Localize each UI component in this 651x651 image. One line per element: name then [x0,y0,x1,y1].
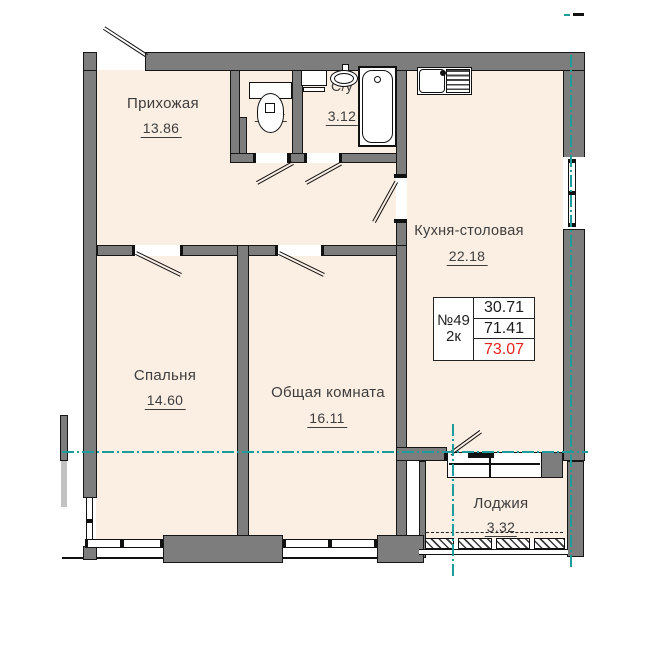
wall-bedroom-living-divider [237,245,249,536]
wall-right-lower [563,229,585,461]
door-jamb [394,174,407,178]
wall-right-upper [563,70,585,158]
axis-line-vertical-right [570,55,572,569]
room-label-living: Общая комната [271,384,385,401]
apartment-number: №49 [437,313,470,330]
wall-hall-bedroom-3 [323,245,397,256]
wall-hall-bedroom-1 [97,245,135,256]
window-tick [86,519,93,523]
axis-line-vertical-loggia [452,424,454,576]
washbasin-inner-icon [334,73,354,84]
room-label-bedroom: Спальня [134,367,196,384]
kitchen-sink-drainer-icon [446,69,470,93]
room-label-hallway: Прихожая [127,95,199,112]
door-jamb [321,245,324,256]
wall-bath-bottom-3 [341,153,397,163]
room-area-bedroom: 14.60 [145,392,186,410]
loggia-parapet-hatch [496,538,530,549]
door-jamb [394,219,407,223]
washing-machine-front-icon [303,87,325,92]
window-tick [283,539,286,548]
room-area-loggia: 3.32 [485,519,517,537]
wall-top-left-post [83,52,97,71]
reference-mark [573,13,584,16]
living-area-cell: 30.71 [474,298,534,319]
loggia-bottom-edge [419,549,568,555]
room-label-kitchen: Кухня-столовая [414,223,523,239]
window-tick [160,539,163,548]
opening-bath-door [307,153,341,163]
loggia-parapet-hatch [458,538,492,549]
door-jamb [180,245,183,256]
wall-kitchen-bottom [396,447,447,461]
wall-left-bottom-post [83,546,97,560]
loggia-parapet-hatch [534,538,565,549]
toilet-flush-icon [265,103,275,113]
bathtub-drain-icon [374,76,381,83]
floor-plan: Прихожая 13.86 С/у 1.54 С/у 3.12 Кухня-с… [0,0,651,651]
room-area-kitchen: 22.18 [447,248,488,266]
room-area-living: 16.11 [307,410,347,428]
washing-machine-icon [301,70,327,86]
total-area-cell: 73.07 [474,339,534,360]
room-area-hallway: 13.86 [141,120,182,138]
window-bedroom-bottom [85,539,163,548]
wall-kitchen-living [396,245,407,448]
opening-entrance [97,53,145,70]
window-tick [85,539,88,548]
axis-line-horizontal [62,451,588,453]
door-jamb [253,153,256,163]
balcony-unit-midline [449,463,540,465]
wall-exterior-stub [60,415,68,461]
window-tick [328,539,332,548]
wall-exterior-stub-light [61,461,67,507]
apartment-number-cell: №49 2к [434,298,474,360]
toilet-bowl-icon [257,93,284,133]
wall-hall-bedroom-2 [182,245,278,256]
area-without-loggia-cell: 71.41 [474,319,534,339]
wall-left [83,70,97,498]
reference-mark-teal [564,14,570,16]
opening-wc-door [256,153,290,163]
wall-balcony-pier [541,452,563,478]
balcony-door-window-unit [447,452,542,478]
door-jamb [304,153,307,163]
opening-kitchen-door [396,178,407,221]
wall-bottom-right-block [377,535,424,563]
room-label-loggia: Лоджия [474,495,529,512]
wall-kitchen-west-upper [396,70,407,178]
room-area-bathroom: 3.12 [326,108,358,126]
balcony-unit-threshold [468,453,494,458]
window-tick [120,539,124,548]
wall-bottom-pier [163,535,283,563]
apartment-type: 2к [446,329,461,346]
door-jamb [444,452,448,461]
wall-kitchen-west-mid [396,221,407,246]
loggia-parapet-hatch [425,538,454,549]
apartment-info-table: №49 2к 30.71 71.41 73.07 [433,297,535,361]
window-tick [374,539,377,548]
